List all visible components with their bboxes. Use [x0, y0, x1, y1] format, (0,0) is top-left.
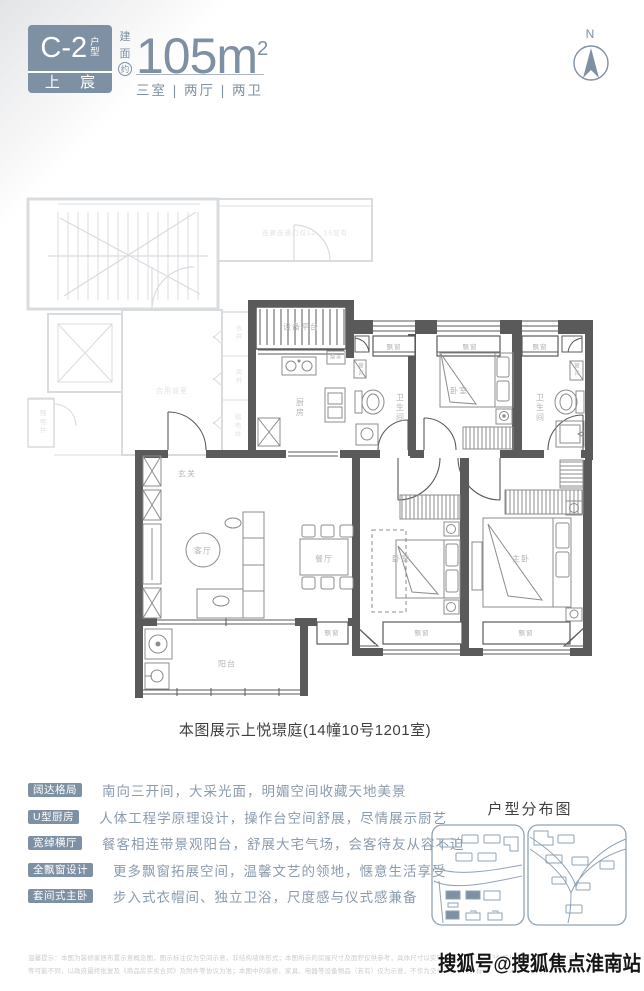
room-label: 主卧 [512, 554, 530, 565]
room-label: 管井 [572, 363, 580, 378]
feature-row: 全飘窗设计更多飘窗拓展空间，温馨文艺的领地，惬意生活享受 [28, 863, 465, 877]
distribution-title: 户型分布图 [430, 798, 630, 819]
area-note: 建 面 约 [118, 28, 132, 80]
room-label: 连廊连通门仅12、15层有 [262, 227, 348, 237]
feature-tag: 宽绰横厅 [28, 836, 82, 850]
brand-name: 上 宸 [28, 73, 112, 92]
unit-badge-top: C-2 户 型 [28, 25, 112, 73]
room-label: 水井 [232, 325, 242, 342]
room-label: 卧室 [450, 386, 468, 397]
watermark: 搜狐号@搜狐焦点淮南站 [438, 948, 641, 977]
room-label: 管井 [356, 363, 364, 378]
room-label: 餐厅 [315, 554, 333, 565]
feature-description: 南向三开间，大采光面，明媚空间收藏天地美景 [102, 780, 407, 800]
room-label: 玄关 [178, 469, 196, 480]
room-label: 飘窗 [415, 627, 430, 637]
floorplan-drawing: 玄关厨房设备平台烟道管井卫生间飘窗卧室飘窗飘窗管井卫生间客厅餐厅卧室主卧阳台飘窗… [15, 190, 629, 715]
compass-icon [571, 43, 611, 83]
room-label: 设备平台 [283, 322, 319, 333]
feature-description: 餐客相连带景观阳台，舒展大宅气场，会客待友从容不迫 [102, 833, 465, 853]
room-label: 飘窗 [325, 627, 340, 637]
feature-row: 宽绰横厅餐客相连带景观阳台，舒展大宅气场，会客待友从容不迫 [28, 836, 465, 850]
feature-description: 更多飘窗拓展空间，温馨文艺的领地，惬意生活享受 [113, 860, 447, 880]
distribution-map [430, 820, 630, 930]
room-label: 厨房 [295, 398, 306, 418]
room-label: 阳台 [218, 659, 236, 670]
room-label: 强电井 [36, 409, 46, 435]
room-label: 飘窗 [519, 627, 534, 637]
unit-code: C-2 [40, 34, 87, 63]
floorplan-page: C-2 户 型 上 宸 建 面 约 105m2 三室 | 两厅 | 两卫 N [0, 0, 644, 991]
area-note-char-1: 建 [120, 28, 131, 44]
feature-tag: 全飘窗设计 [28, 863, 93, 877]
area-exponent: 2 [257, 38, 268, 60]
feature-description: 人体工程学原理设计，操作台空间舒展，尽情展示厨艺 [99, 807, 447, 827]
feature-row: 套间式主卧步入式衣帽间、独立卫浴，尺度感与仪式感兼备 [28, 889, 465, 903]
feature-tag: 套间式主卧 [28, 889, 93, 903]
floorplan-caption: 本图展示上悦璟庭(14幢10号1201室) [0, 719, 610, 740]
compass-north-label: N [582, 27, 598, 41]
area-figure: 建 面 约 105m2 [118, 26, 268, 80]
feature-row: U型厨房人体工程学原理设计，操作台空间舒展，尽情展示厨艺 [28, 810, 465, 824]
room-label: 合用前室 [156, 386, 188, 396]
unit-badge: C-2 户 型 上 宸 [28, 25, 112, 93]
feature-row: 阔达格局南向三开间，大采光面，明媚空间收藏天地美景 [28, 783, 465, 797]
room-label: 卫生间 [535, 393, 546, 423]
room-label: 飘窗 [463, 341, 478, 351]
feature-tag: U型厨房 [28, 810, 79, 824]
unit-suffix-char-2: 型 [90, 48, 100, 59]
faded-public-core [28, 199, 372, 455]
area-note-char-2: 面 [120, 45, 131, 61]
room-summary: 三室 | 两厅 | 两卫 [136, 79, 263, 99]
room-label: 卫生间 [395, 393, 406, 423]
room-label: 烟道 [330, 354, 342, 361]
room-label: 飘窗 [533, 341, 548, 351]
unit-code-suffix: 户 型 [90, 38, 100, 59]
area-note-char-3: 约 [118, 62, 132, 76]
area-number: 105m [136, 28, 257, 84]
room-label: 弱电井 [231, 413, 241, 439]
floorplan-svg [15, 190, 629, 715]
feature-description: 步入式衣帽间、独立卫浴，尺度感与仪式感兼备 [113, 886, 418, 906]
area-value: 105m2 [136, 26, 268, 80]
room-label: 卧室 [392, 554, 410, 565]
room-label: 客厅 [194, 546, 212, 557]
room-label: 风井 [232, 369, 242, 386]
feature-list: 阔达格局南向三开间，大采光面，明媚空间收藏天地美景U型厨房人体工程学原理设计，操… [28, 783, 465, 916]
room-label: 飘窗 [387, 341, 402, 351]
header-divider [136, 74, 264, 75]
feature-tag: 阔达格局 [28, 783, 82, 797]
